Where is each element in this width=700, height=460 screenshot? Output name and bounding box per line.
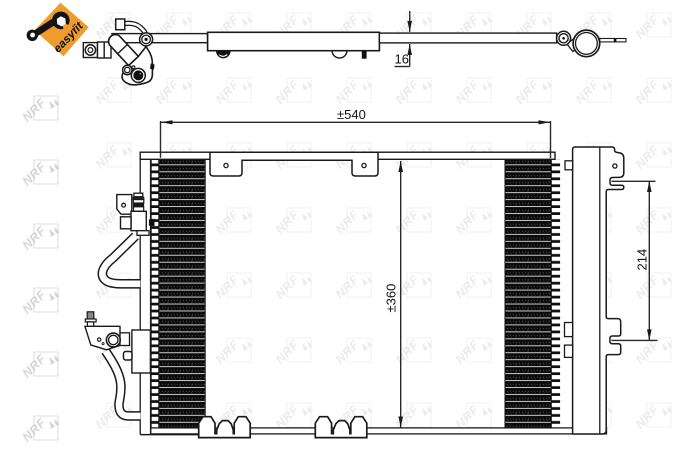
svg-text:16: 16 bbox=[395, 52, 409, 67]
svg-text:±540: ±540 bbox=[337, 107, 366, 122]
svg-text:±360: ±360 bbox=[384, 284, 399, 313]
svg-text:214: 214 bbox=[635, 249, 650, 271]
